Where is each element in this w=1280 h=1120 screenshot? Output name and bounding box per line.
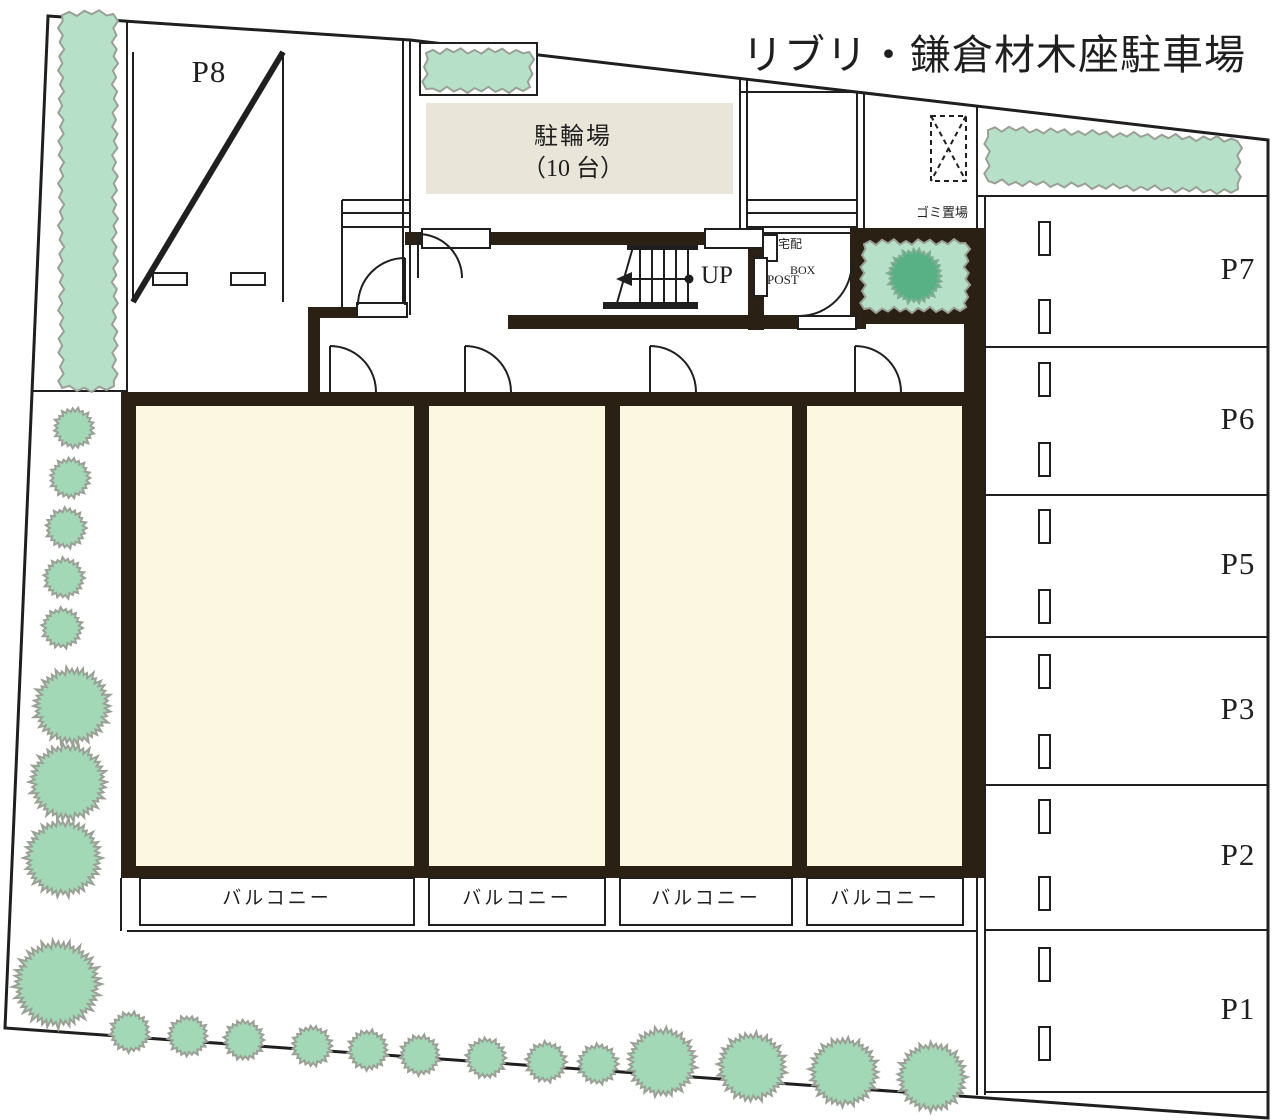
page-title: リブリ・鎌倉材木座駐車場 [690, 34, 1246, 77]
parking-space-label-p6: P6 [1203, 403, 1273, 436]
entrance-planter [860, 239, 970, 313]
balcony-label-4: バルコニー [825, 889, 945, 909]
balcony-label-1: バルコニー [217, 889, 337, 909]
parking-space-label-p2: P2 [1203, 839, 1273, 872]
parking-space-label-p8: P8 [177, 56, 241, 89]
bicycle-parking-label: 駐輪場 [493, 125, 653, 150]
post-label: POST [767, 273, 799, 287]
stairs-up-label: UP [701, 263, 733, 289]
garbage-area-label: ゴミ置場 [910, 206, 974, 220]
parking-space-label-p3: P3 [1203, 693, 1273, 726]
bicycle-parking-capacity: （10 台） [493, 157, 653, 182]
delivery-box-label-line1: 宅配 [778, 237, 802, 251]
parking-space-label-p7: P7 [1203, 253, 1273, 286]
balcony-label-2: バルコニー [457, 889, 577, 909]
apartments [121, 392, 984, 878]
balcony-label-3: バルコニー [646, 889, 766, 909]
site-plan: リブリ・鎌倉材木座駐車場 P8 駐輪場 （10 台） ゴミ置場 宅配 BOX P… [0, 0, 1280, 1120]
parking-space-label-p5: P5 [1203, 548, 1273, 581]
parking-space-label-p1: P1 [1203, 993, 1273, 1026]
